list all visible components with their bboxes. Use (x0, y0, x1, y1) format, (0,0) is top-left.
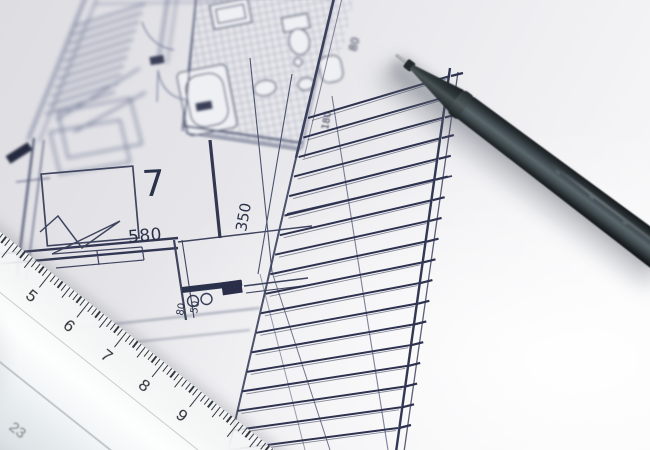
bidet (318, 54, 345, 84)
wall-block (221, 280, 243, 296)
dim-80-top-label: 80 (346, 36, 362, 53)
ruler-corner-label: 23 (6, 418, 30, 442)
outlet-50-label: 50 (189, 300, 202, 314)
outlet-80-label: 80 (175, 302, 188, 316)
ruler-cm-number: 8 (134, 375, 154, 397)
bathroom: 80 (176, 0, 362, 150)
ruler-tick (264, 446, 270, 450)
photo-floor-plan-scene: 80 (0, 0, 650, 450)
drain (294, 58, 302, 66)
ruler-cm-number: 7 (96, 345, 116, 367)
ruler-cm-number: 9 (172, 405, 192, 427)
room-number-label: 7 (141, 163, 166, 205)
dim-580-label: 580 (127, 225, 163, 248)
ruler-cm-number: 5 (21, 286, 41, 308)
door-leaf (210, 140, 220, 238)
ruler-cm-number: 6 (59, 315, 79, 337)
outlet-symbol (201, 294, 212, 305)
dim-350-label: 350 (232, 201, 255, 232)
